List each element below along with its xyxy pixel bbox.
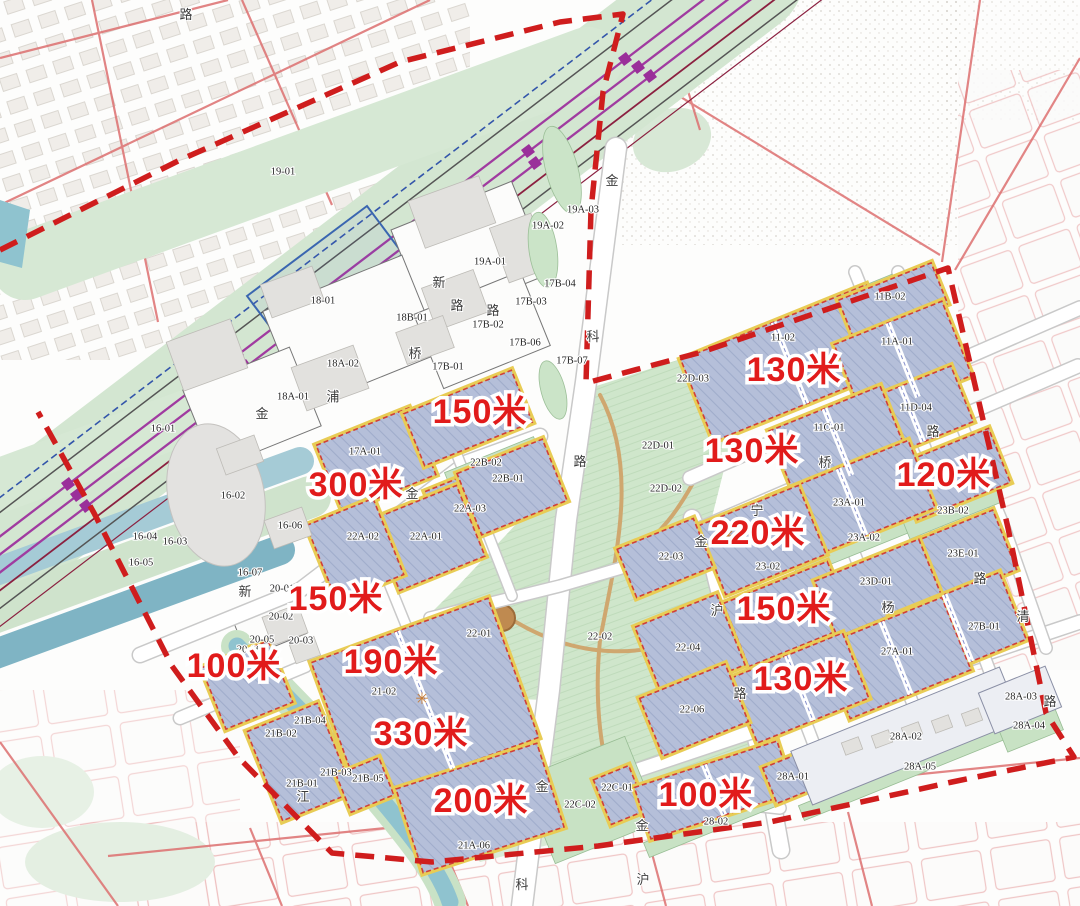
parcel-code-label: 17A-01: [349, 446, 381, 457]
road-name-label: 路: [179, 7, 192, 22]
parcel-code-label: 22A-02: [347, 531, 379, 542]
parcel-code-label: 28A-03: [1005, 691, 1037, 702]
road-name-label: 清: [1016, 609, 1029, 624]
parcel-code-label: 28-02: [704, 816, 729, 827]
parcel-code-label: 11D-04: [900, 402, 932, 413]
road-name-label: 科: [586, 329, 599, 344]
road-name-label: 金: [694, 534, 707, 549]
parcel-code-label: 21B-01: [286, 778, 318, 789]
parcel-code-label: 16-02: [221, 490, 246, 501]
parcel-code-label: 21B-03: [320, 767, 352, 778]
road-name-label: 江: [296, 789, 309, 804]
road-name-label: 路: [973, 571, 986, 586]
plan-canvas: ✳✳ 路金科路新路桥路浦金金新江金科金沪金沪路桥宁杨路路清路 19-0119A-…: [0, 0, 1080, 906]
asterisk-marker: ✳: [415, 691, 428, 708]
height-limit-label: 100米: [187, 647, 282, 685]
parcel-code-label: 21A-06: [458, 840, 490, 851]
parcel-code-label: 22-02: [588, 631, 613, 642]
road-name-label: 金: [635, 818, 648, 833]
parcel-code-label: 22-04: [676, 642, 701, 653]
height-limit-label: 120米: [897, 456, 992, 494]
road-name-label: 金: [605, 173, 618, 188]
parcel-code-label: 22C-01: [601, 782, 633, 793]
parcel-code-label: 22D-03: [677, 373, 709, 384]
road-name-label: 金: [255, 406, 268, 421]
parcel-code-label: 23E-01: [948, 548, 979, 559]
parcel-code-label: 11A-01: [881, 336, 913, 347]
height-limit-label: 130米: [754, 660, 849, 698]
parcel-code-label: 18A-02: [327, 358, 359, 369]
parcel-code-label: 18A-01: [277, 391, 309, 402]
parcel-code-label: 18-01: [311, 295, 336, 306]
height-limit-label: 130米: [747, 351, 842, 389]
parcel-code-label: 19A-01: [474, 256, 506, 267]
parcel-code-label: 17B-06: [509, 337, 541, 348]
parcel-code-label: 21B-05: [352, 773, 384, 784]
parcel-code-label: 22A-03: [454, 503, 486, 514]
road-name-label: 新: [432, 275, 445, 290]
parcel-code-label: 21B-02: [265, 728, 297, 739]
road-name-label: 浦: [326, 389, 339, 404]
parcel-code-label: 21B-04: [294, 715, 326, 726]
height-limit-label: 200米: [434, 782, 529, 820]
parcel-code-label: 17B-01: [432, 361, 464, 372]
road-name-label: 沪: [710, 603, 723, 618]
parcel-code-label: 22D-01: [642, 440, 674, 451]
road-name-label: 桥: [408, 346, 421, 361]
parcel-code-label: 22C-02: [564, 799, 596, 810]
parcel-code-label: 22D-02: [650, 483, 682, 494]
height-limit-label: 190米: [344, 643, 439, 681]
parcel-code-label: 22B-02: [470, 457, 502, 468]
parcel-code-label: 17B-03: [515, 296, 547, 307]
parcel-code-label: 19-01: [271, 166, 296, 177]
parcel-code-label: 18B-01: [396, 312, 428, 323]
parcel-code-label: 22-01: [467, 628, 492, 639]
parcel-code-label: 28A-01: [777, 771, 809, 782]
parcel-code-label: 27A-01: [881, 646, 913, 657]
road-name-label: 路: [573, 454, 586, 469]
road-name-label: 金: [405, 486, 418, 501]
road-name-label: 金: [535, 779, 548, 794]
parcel-code-label: 11-02: [771, 332, 795, 343]
road-name-label: 新: [238, 584, 251, 599]
parcel-code-label: 23-02: [756, 561, 781, 572]
parcel-code-label: 22-03: [659, 551, 684, 562]
parcel-code-label: 16-01: [151, 423, 176, 434]
parcel-code-label: 23D-01: [860, 576, 892, 587]
parcel-code-label: 23A-01: [833, 497, 865, 508]
parcel-code-label: 11C-01: [813, 422, 844, 433]
road-name-label: 桥: [818, 455, 831, 470]
parcel-code-label: 19A-03: [567, 204, 599, 215]
parcel-code-label: 17B-04: [544, 278, 576, 289]
height-limit-label: 300米: [309, 466, 404, 504]
parcel-code-label: 16-05: [129, 557, 154, 568]
road-name-label: 杨: [881, 600, 894, 615]
parcel-code-label: 28A-02: [890, 731, 922, 742]
road-name-label: 路: [926, 424, 939, 439]
parcel-code-label: 21-02: [372, 686, 397, 697]
parcel-code-label: 22-06: [680, 704, 705, 715]
road-name-label: 科: [515, 877, 528, 892]
road-name-label: 沪: [636, 872, 649, 887]
height-limit-label: 330米: [374, 715, 469, 753]
parcel-code-label: 16-03: [163, 536, 188, 547]
height-limit-label: 130米: [705, 432, 800, 470]
road-name-label: 路: [450, 298, 463, 313]
height-limit-label: 150米: [289, 580, 384, 618]
parcel-code-label: 23B-02: [937, 505, 969, 516]
parcel-code-label: 22B-01: [492, 473, 524, 484]
road-name-label: 路: [1043, 694, 1056, 709]
parcel-code-label: 23A-02: [848, 532, 880, 543]
height-limit-label: 150米: [433, 393, 528, 431]
parcel-code-label: 27B-01: [968, 621, 1000, 632]
master-plan-map: ✳✳ 路金科路新路桥路浦金金新江金科金沪金沪路桥宁杨路路清路 19-0119A-…: [0, 0, 1080, 906]
road-name-label: 路: [733, 686, 746, 701]
parcel-code-label: 28A-04: [1013, 720, 1046, 731]
parcel-code-label: 16-04: [133, 531, 158, 542]
parcel-code-label: 17B-07: [556, 355, 588, 366]
parcel-code-label: 16-06: [278, 520, 303, 531]
parcel-code-label: 16-07: [238, 567, 263, 578]
parcel-code-label: 22A-01: [410, 531, 442, 542]
road-name-label: 路: [486, 303, 499, 318]
height-limit-label: 100米: [659, 776, 754, 814]
parcel-code-label: 28A-05: [904, 761, 936, 772]
parcel-code-label: 11B-02: [874, 291, 905, 302]
parcel-code-label: 20-03: [289, 635, 314, 646]
parcel-code-label: 19A-02: [532, 220, 564, 231]
parcel-code-label: 17B-02: [472, 319, 504, 330]
height-limit-label: 220米: [711, 514, 806, 552]
height-limit-label: 150米: [737, 590, 832, 628]
